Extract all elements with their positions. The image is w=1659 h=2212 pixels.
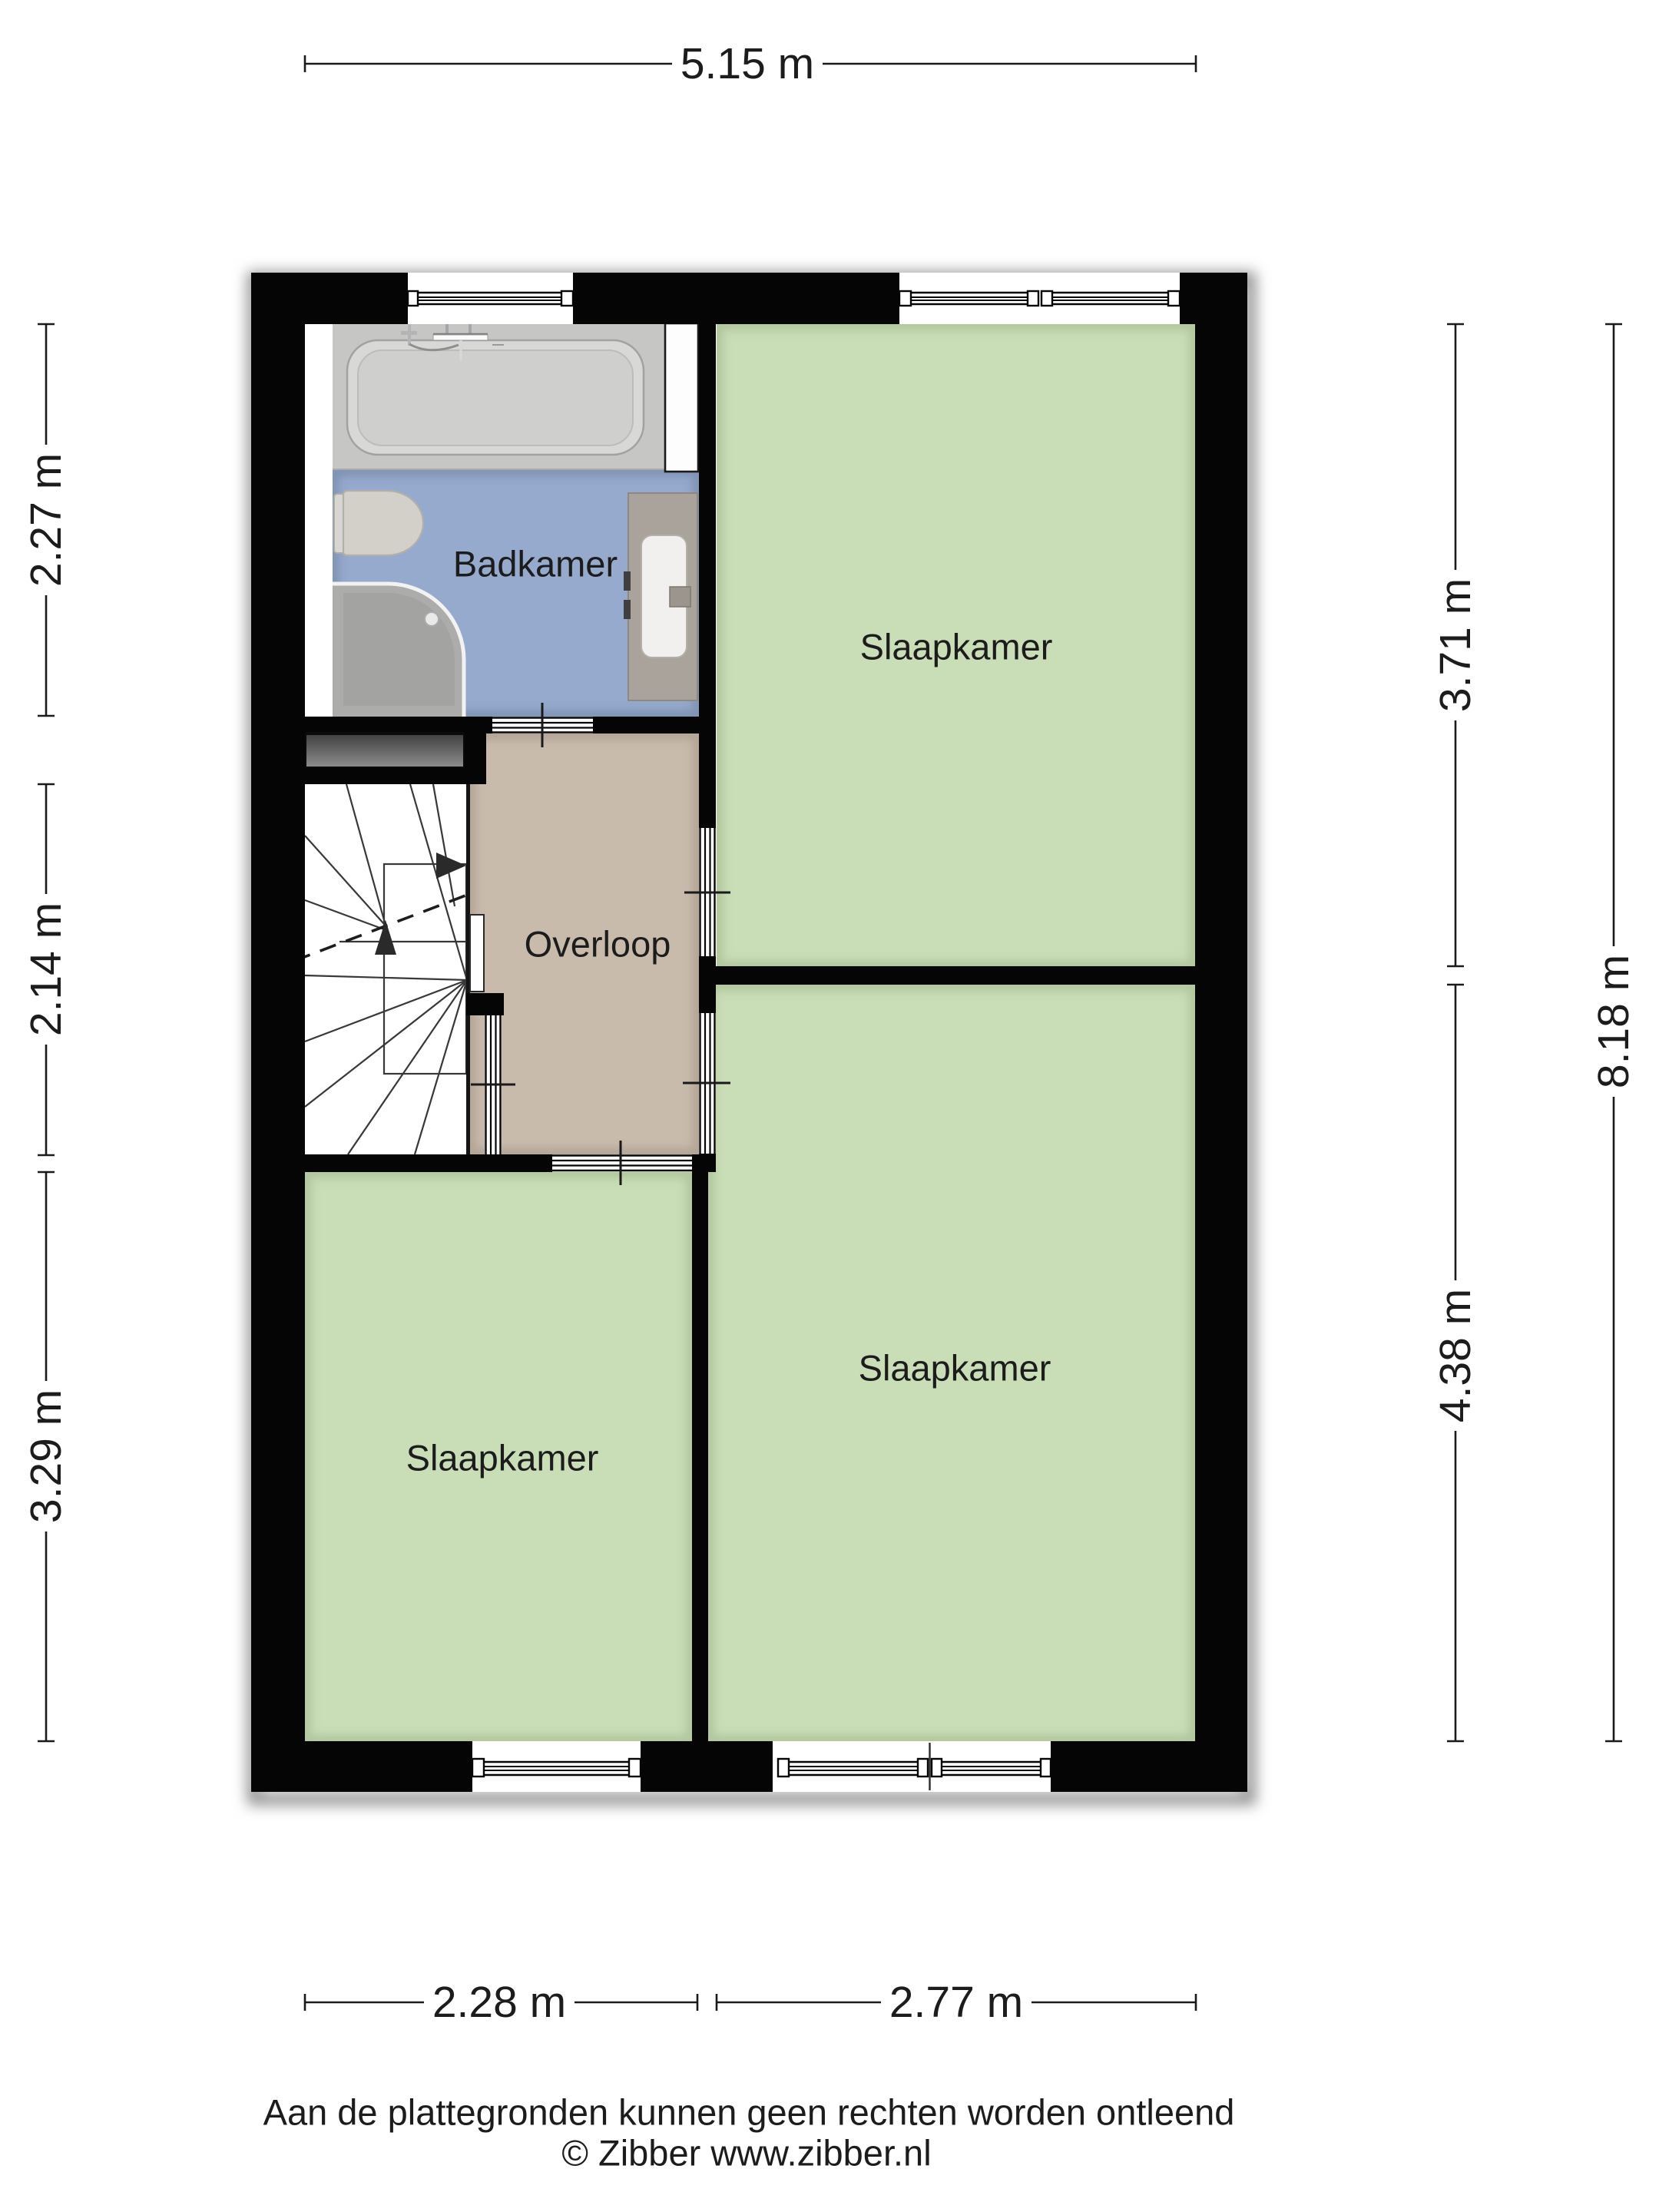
svg-text:2.14 m: 2.14 m (22, 902, 71, 1036)
svg-text:4.38 m: 4.38 m (1431, 1289, 1480, 1422)
svg-text:8.18 m: 8.18 m (1589, 955, 1638, 1088)
svg-text:Aan de plattegronden kunnen ge: Aan de plattegronden kunnen geen rechten… (263, 2092, 1235, 2133)
svg-text:Badkamer: Badkamer (453, 544, 618, 584)
svg-text:Slaapkamer: Slaapkamer (860, 627, 1053, 667)
svg-text:2.27 m: 2.27 m (22, 453, 71, 587)
svg-text:Slaapkamer: Slaapkamer (859, 1348, 1051, 1389)
svg-text:2.77 m: 2.77 m (889, 1978, 1023, 2027)
svg-text:Slaapkamer: Slaapkamer (406, 1438, 599, 1479)
svg-text:5.15 m: 5.15 m (680, 39, 814, 88)
svg-text:3.29 m: 3.29 m (22, 1389, 71, 1523)
svg-text:3.71 m: 3.71 m (1431, 578, 1480, 712)
svg-text:Overloop: Overloop (525, 924, 671, 965)
svg-text:2.28 m: 2.28 m (432, 1978, 566, 2027)
svg-text:© Zibber www.zibber.nl: © Zibber www.zibber.nl (561, 2133, 931, 2174)
